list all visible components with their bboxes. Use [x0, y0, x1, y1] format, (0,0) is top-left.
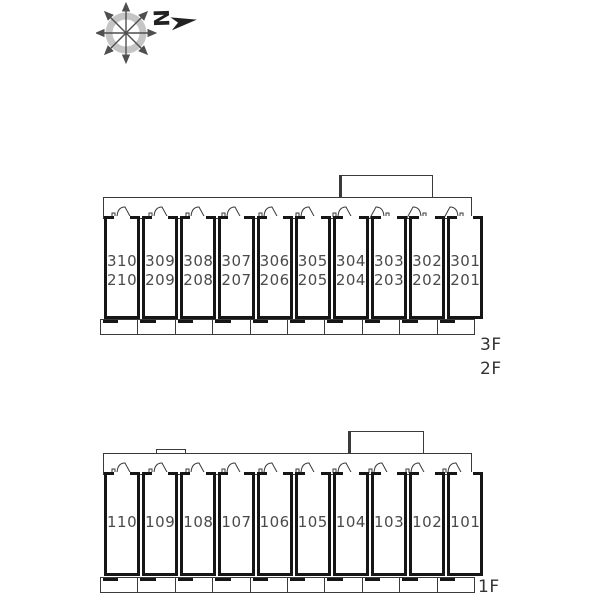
- balcony-cell: [288, 578, 325, 592]
- balcony-cell: [400, 578, 437, 592]
- balcony-cell: [176, 578, 213, 592]
- window-sill: [365, 578, 380, 581]
- balcony-cell: [138, 578, 175, 592]
- door-opening: [343, 216, 359, 219]
- window-sill: [140, 320, 155, 323]
- room-number: 302202: [412, 252, 442, 290]
- balcony-cell: [213, 320, 250, 334]
- door-opening: [190, 472, 206, 475]
- north-indicator: N: [148, 4, 206, 38]
- room-number: 109: [145, 513, 175, 532]
- window-sill: [327, 320, 342, 323]
- room-cell: 308208: [180, 216, 216, 319]
- door-opening: [267, 472, 283, 475]
- door-opening: [305, 216, 321, 219]
- floor-label: 1F: [478, 577, 500, 597]
- stairs-icon: [349, 432, 351, 455]
- room-cell: 107: [218, 472, 254, 576]
- balcony-cell: [400, 320, 437, 334]
- room-number: 105: [298, 513, 328, 532]
- stairs-icon: [340, 176, 342, 199]
- room-number: 108: [183, 513, 213, 532]
- room-cell: 102: [409, 472, 445, 576]
- room-cell: 304204: [333, 216, 369, 319]
- room-cell: 306206: [257, 216, 293, 319]
- window-sill: [103, 578, 118, 581]
- staircase-block: [339, 175, 433, 199]
- door-opening: [419, 216, 435, 219]
- door-opening: [152, 216, 168, 219]
- staircase-block: [348, 431, 424, 455]
- balcony-strip: [100, 319, 475, 335]
- balcony-cell: [325, 578, 362, 592]
- window-sill: [440, 578, 455, 581]
- compass-rose: N: [96, 2, 206, 64]
- door-opening: [457, 216, 473, 219]
- floor-label: 3F: [480, 335, 502, 355]
- room-number: 310210: [107, 252, 137, 290]
- window-sill: [178, 320, 193, 323]
- room-cell: 305205: [295, 216, 331, 319]
- room-number: 107: [221, 513, 251, 532]
- balcony-cell: [325, 320, 362, 334]
- room-cell: 109: [142, 472, 178, 576]
- floor-plan-canvas: N 31021030920930820830720730620630520530…: [0, 0, 600, 600]
- window-sill: [253, 578, 268, 581]
- window-sill: [327, 578, 342, 581]
- balcony-cell: [288, 320, 325, 334]
- room-cell: 302202: [409, 216, 445, 319]
- room-number: 309209: [145, 252, 175, 290]
- balcony-cell: [363, 320, 400, 334]
- balcony-cell: [363, 578, 400, 592]
- door-opening: [267, 216, 283, 219]
- room-number: 308208: [183, 252, 213, 290]
- window-sill: [215, 320, 230, 323]
- room-number: 102: [412, 513, 442, 532]
- room-number: 303203: [374, 252, 404, 290]
- window-sill: [215, 578, 230, 581]
- room-cell: 103: [371, 472, 407, 576]
- balcony-cell: [101, 578, 138, 592]
- door-opening: [343, 472, 359, 475]
- room-number: 307207: [221, 252, 251, 290]
- room-cell: 106: [257, 472, 293, 576]
- window-sill: [140, 578, 155, 581]
- room-number: 305205: [298, 252, 328, 290]
- balcony-cell: [176, 320, 213, 334]
- room-row: 3102103092093082083072073062063052053042…: [103, 216, 470, 319]
- window-sill: [178, 578, 193, 581]
- north-arrow-icon: [170, 12, 198, 32]
- room-cell: 303203: [371, 216, 407, 319]
- room-row: 110109108107106105104103102101: [103, 472, 470, 576]
- door-opening: [305, 472, 321, 475]
- window-sill: [365, 320, 380, 323]
- balcony-cell: [251, 320, 288, 334]
- door-opening: [228, 472, 244, 475]
- room-cell: 307207: [218, 216, 254, 319]
- door-opening: [114, 216, 130, 219]
- balcony-cell: [213, 578, 250, 592]
- room-cell: 110: [104, 472, 140, 576]
- room-number: 301201: [450, 252, 480, 290]
- balcony-cell: [251, 578, 288, 592]
- room-cell: 108: [180, 472, 216, 576]
- room-cell: 309209: [142, 216, 178, 319]
- window-sill: [103, 320, 118, 323]
- window-sill: [402, 320, 417, 323]
- door-opening: [114, 472, 130, 475]
- balcony-cell: [438, 320, 474, 334]
- floor-label: 2F: [480, 359, 502, 379]
- window-sill: [440, 320, 455, 323]
- room-number: 106: [260, 513, 290, 532]
- room-cell: 105: [295, 472, 331, 576]
- balcony-cell: [101, 320, 138, 334]
- room-number: 101: [450, 513, 480, 532]
- door-opening: [152, 472, 168, 475]
- room-number: 110: [107, 513, 137, 532]
- room-cell: 301201: [447, 216, 483, 319]
- room-number: 103: [374, 513, 404, 532]
- window-sill: [402, 578, 417, 581]
- door-opening: [190, 216, 206, 219]
- window-sill: [253, 320, 268, 323]
- balcony-strip: [100, 577, 475, 593]
- room-number: 304204: [336, 252, 366, 290]
- door-opening: [381, 216, 397, 219]
- door-opening: [457, 472, 473, 475]
- room-number: 306206: [260, 252, 290, 290]
- door-opening: [228, 216, 244, 219]
- door-opening: [419, 472, 435, 475]
- room-cell: 310210: [104, 216, 140, 319]
- door-opening: [381, 472, 397, 475]
- room-number: 104: [336, 513, 366, 532]
- room-cell: 101: [447, 472, 483, 576]
- balcony-cell: [438, 578, 474, 592]
- window-sill: [290, 578, 305, 581]
- window-sill: [290, 320, 305, 323]
- balcony-cell: [138, 320, 175, 334]
- room-cell: 104: [333, 472, 369, 576]
